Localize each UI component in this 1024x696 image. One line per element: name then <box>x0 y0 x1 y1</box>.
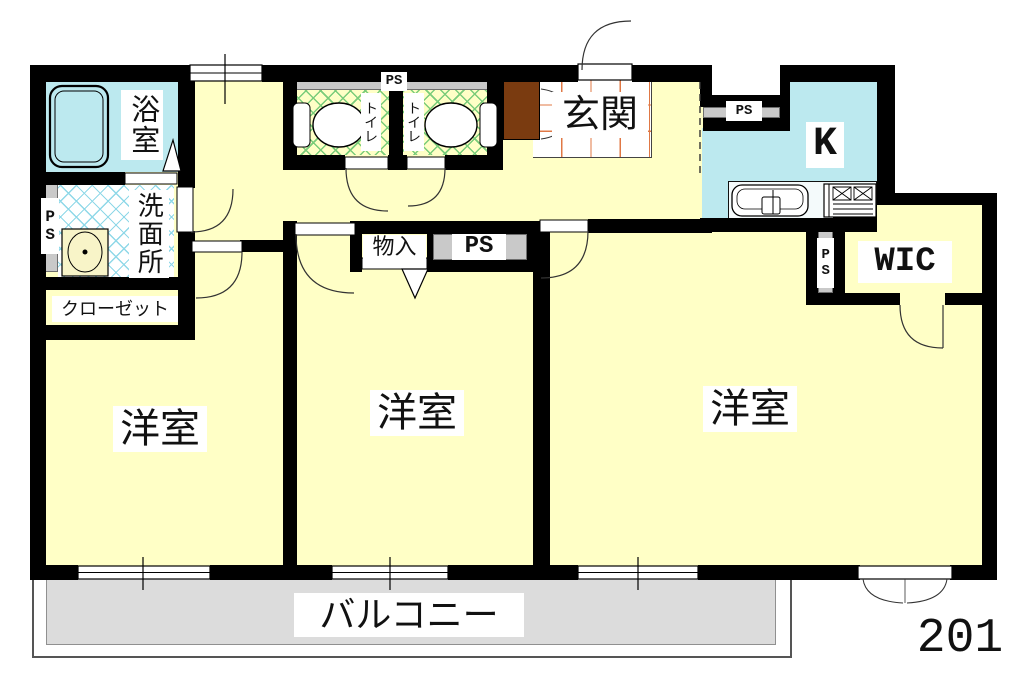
wall <box>427 260 540 272</box>
wall <box>210 565 332 580</box>
wall <box>350 234 362 272</box>
unit-number: 201 <box>908 610 1012 668</box>
kitchen-floor-main <box>702 128 877 181</box>
wic-label: WIC <box>858 241 952 283</box>
wall <box>950 565 997 580</box>
balcony-label: バルコニー <box>294 593 524 637</box>
wall <box>30 565 78 580</box>
wall <box>30 65 190 82</box>
wall <box>833 231 845 297</box>
bath-label: 浴室 <box>121 90 163 160</box>
exterior-notch-top <box>712 55 790 96</box>
wall <box>945 293 997 305</box>
wall <box>427 234 433 262</box>
washroom-label: 洗面所 <box>129 190 169 278</box>
ps-above-toilets-label: PS <box>381 72 407 91</box>
ps-hall-label: PS <box>452 234 506 260</box>
wall <box>30 172 125 185</box>
ps-right-label: PS <box>817 238 834 288</box>
kitchen-label: K <box>806 122 844 168</box>
wall <box>283 155 345 170</box>
ps-kitchen-label: PS <box>726 101 762 121</box>
wall <box>350 221 540 234</box>
wall <box>877 193 997 205</box>
wall <box>448 565 578 580</box>
storage-label: 物入 <box>363 235 426 260</box>
wall <box>178 65 195 188</box>
entrance-label: 玄関 <box>552 92 648 138</box>
wall <box>698 565 860 580</box>
wall <box>388 155 407 170</box>
wall <box>833 205 877 232</box>
wall <box>262 65 578 82</box>
closet-label: クローゼット <box>52 296 178 322</box>
kitchen-floor-strip <box>702 181 728 219</box>
western-room-right-label: 洋室 <box>703 386 797 432</box>
wall <box>30 65 46 580</box>
western-room-left-label: 洋室 <box>113 406 207 452</box>
wall <box>30 277 195 290</box>
toilet1-label: トイレ <box>361 93 381 151</box>
wall <box>806 293 900 305</box>
ps-left-label: PS <box>41 198 59 254</box>
toilet2-label: トイレ <box>404 93 424 151</box>
western-room-center-label: 洋室 <box>370 390 464 436</box>
entrance-door-arc <box>582 21 631 70</box>
wall <box>533 231 550 565</box>
wall <box>283 221 297 565</box>
wall <box>588 219 712 233</box>
wall <box>445 155 503 170</box>
wall <box>30 325 195 340</box>
wall <box>877 65 895 205</box>
exterior-notch-topright <box>894 50 1024 193</box>
floor-plan: 浴室 洗面所 クローゼット PS トイレ トイレ PS 玄関 PS K WIC … <box>0 0 1024 696</box>
shoe-cabinet <box>503 77 540 140</box>
wall <box>982 193 997 580</box>
